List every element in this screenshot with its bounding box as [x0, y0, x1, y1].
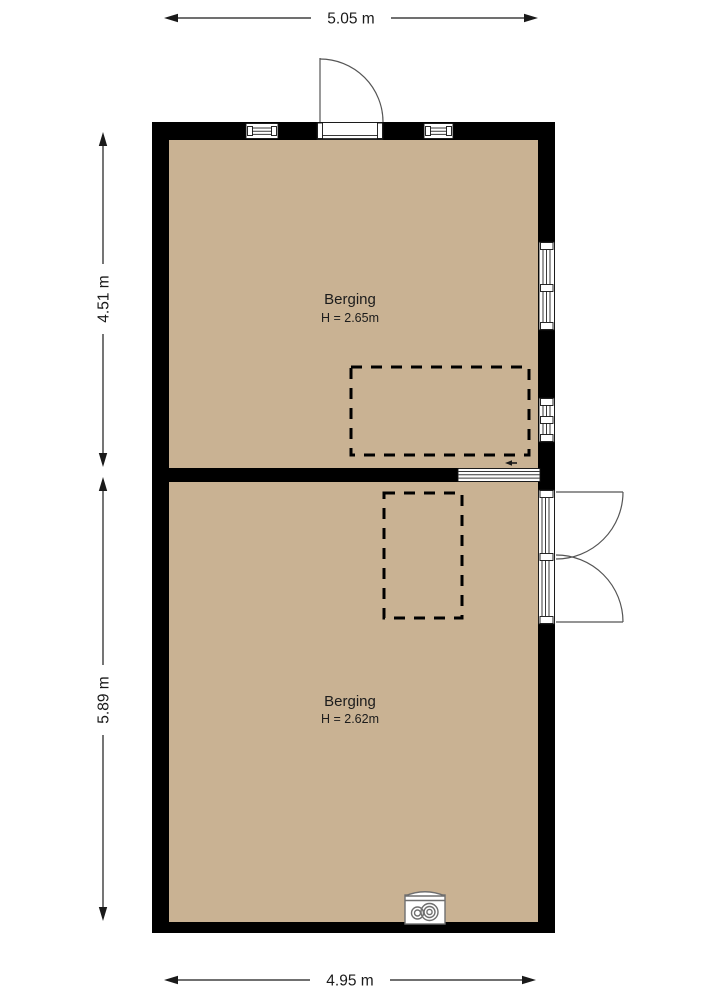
- door-top: [317, 58, 383, 140]
- boiler-icon: [405, 892, 445, 924]
- dimension-bottom: 4.95 m: [164, 968, 536, 992]
- dimension-left-upper: 4.51 m: [91, 132, 115, 467]
- room-lower-label: Berging H = 2.62m: [321, 693, 379, 726]
- arrow-down-icon: [99, 907, 107, 921]
- arrow-left-icon: [164, 976, 178, 984]
- dimension-top-label: 5.05 m: [327, 11, 374, 28]
- arrow-right-icon: [522, 976, 536, 984]
- arrow-up-icon: [99, 132, 107, 146]
- dimension-left-lower-label: 5.89 m: [96, 676, 113, 723]
- dimension-top: 5.05 m: [164, 6, 538, 30]
- window-right-lower: [539, 398, 555, 442]
- arrow-left-icon: [164, 14, 178, 22]
- door-swing-arc-top: [556, 492, 623, 559]
- arrow-up-icon: [99, 477, 107, 491]
- window-top-left: [246, 124, 278, 139]
- room-upper-height: H = 2.65m: [321, 311, 379, 325]
- building: [152, 122, 555, 933]
- floorplan-drawing: 5.05 m 4.51 m 5.89 m 4.95 m: [0, 0, 707, 1000]
- arrow-down-icon: [99, 453, 107, 467]
- double-door-right: [539, 490, 624, 624]
- interior-wall-glazing: [458, 469, 540, 482]
- room-lower-height: H = 2.62m: [321, 712, 379, 726]
- door-swing-arc: [320, 59, 383, 122]
- window-right-upper: [539, 242, 555, 330]
- dimension-left-lower: 5.89 m: [91, 477, 115, 921]
- floorplan-canvas: 5.05 m 4.51 m 5.89 m 4.95 m: [0, 0, 707, 1000]
- room-lower-name: Berging: [324, 693, 376, 710]
- door-swing-arc-bottom: [556, 555, 623, 622]
- window-top-right: [424, 124, 453, 139]
- arrow-right-icon: [524, 14, 538, 22]
- dimension-bottom-label: 4.95 m: [326, 973, 373, 990]
- room-upper-name: Berging: [324, 291, 376, 308]
- dimension-left-upper-label: 4.51 m: [96, 275, 113, 322]
